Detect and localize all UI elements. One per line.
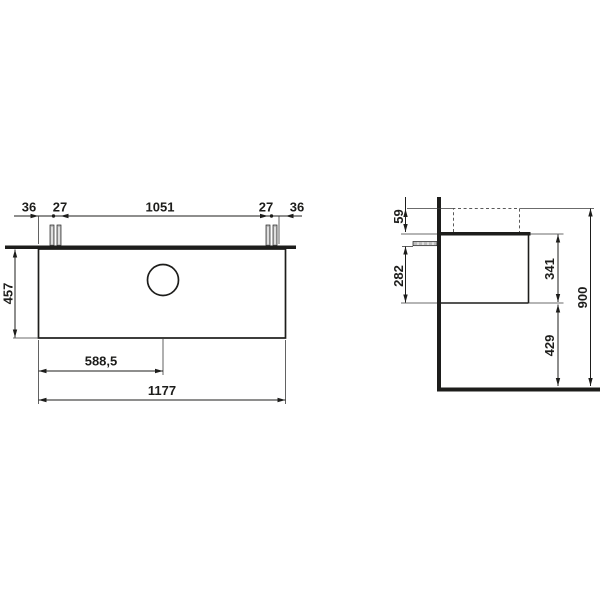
dim-label-457: 457 (1, 283, 16, 305)
floor-line (437, 388, 600, 392)
dim-label-900: 900 (575, 287, 590, 309)
front-cabinet-body (39, 249, 286, 338)
drain-hole (148, 265, 179, 296)
front-height-dimension: 457 (1, 250, 39, 339)
total-width-dimension: 1177 (39, 340, 286, 404)
dimension-drawing: 36 27 1051 27 36 457 588,5 (0, 0, 600, 600)
dim-label-27-right: 27 (259, 200, 273, 215)
rim-offset-dimension: 59 (391, 197, 408, 232)
technical-drawing-page: 36 27 1051 27 36 457 588,5 (0, 0, 600, 600)
front-view: 36 27 1051 27 36 457 588,5 (1, 200, 305, 405)
dim-label-36-left: 36 (22, 200, 36, 215)
drain-offset-dimension: 588,5 (39, 339, 164, 375)
side-extension-lines (401, 209, 594, 304)
mounting-screws-right (266, 225, 277, 246)
side-view: 59 282 341 429 900 (391, 197, 600, 392)
washbasin-dashed-outline (454, 209, 520, 233)
dim-label-1051: 1051 (146, 200, 175, 215)
wall-screw (413, 242, 437, 246)
dim-label-36-right: 36 (290, 200, 304, 215)
mounting-screws-left (50, 225, 61, 246)
dim-label-1177: 1177 (148, 383, 176, 398)
wall-line (437, 197, 441, 391)
dim-label-588-5: 588,5 (85, 354, 118, 369)
side-countertop (441, 232, 531, 236)
body-height-dimension: 341 (542, 235, 560, 303)
dim-label-429: 429 (542, 335, 557, 357)
bracket-height-dimension: 282 (391, 247, 408, 303)
dim-label-27-left: 27 (53, 200, 67, 215)
dim-label-282: 282 (391, 265, 406, 287)
overall-height-dimension: 900 (575, 209, 593, 387)
dim-label-59: 59 (391, 209, 406, 223)
floor-clearance-dimension: 429 (542, 305, 560, 387)
dim-label-341: 341 (542, 258, 557, 280)
